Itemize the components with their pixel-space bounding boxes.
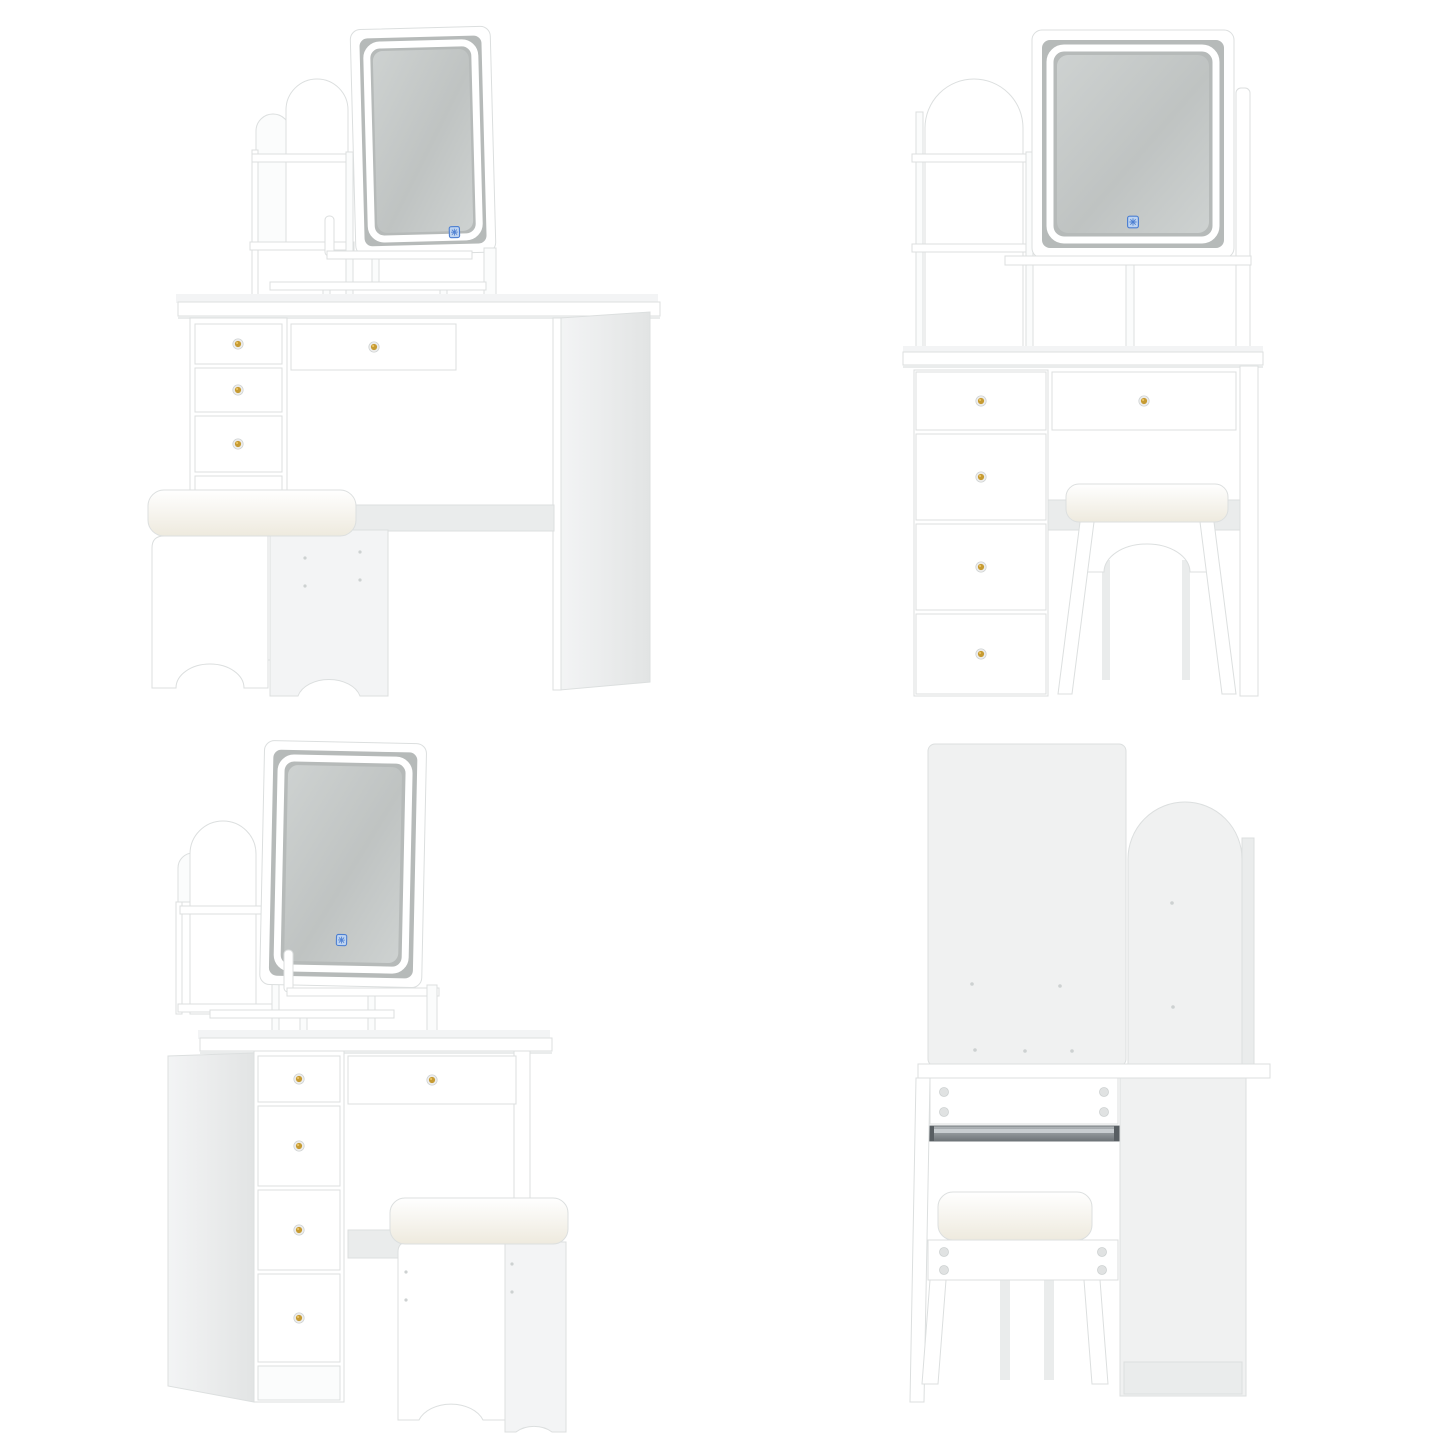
drawer-knob[interactable] [294,1225,304,1235]
cam-lock-fitting [1100,1108,1109,1117]
arched-back-panel [1128,802,1242,1066]
cam-lock [1070,1049,1074,1053]
cam-lock [1058,984,1062,988]
hutch-shelf [912,244,1034,252]
drawer[interactable] [195,324,282,364]
drawer[interactable] [916,372,1046,430]
cam-lock [970,982,974,986]
cam-lock [973,1048,977,1052]
desktop [903,352,1263,365]
stool-leg [1084,1280,1108,1384]
screw [303,584,306,587]
screw [358,578,361,581]
stool-rear-leg [1044,1280,1054,1380]
shelf-arch-sidewall [284,950,293,992]
cubby-divider [1126,265,1134,352]
led-mirror [260,740,427,987]
stool-leg [1200,522,1236,694]
stool-front-panel [152,536,268,688]
screw [303,556,306,559]
shelf-divider [372,259,379,285]
arched-shelf-panel [286,79,348,248]
stool-rear-leg [1182,560,1190,680]
mirror-glass [284,765,402,963]
drawer-slide-rail [926,1126,1122,1141]
wide-drawer[interactable] [291,324,456,370]
side-back-panel [1242,838,1254,1066]
drawer[interactable] [195,368,282,412]
stool-rear-leg [1000,1280,1010,1380]
right-panel-front-edge [553,318,561,690]
stool-cushion [148,490,356,536]
drawer-knob[interactable] [233,339,243,349]
cam-lock-fitting [940,1266,949,1275]
stool-rear [922,1192,1118,1384]
drawer[interactable] [258,1274,340,1362]
stool-rear-leg [1102,560,1110,680]
left-side-panel [168,1053,254,1402]
stool-front-panel [398,1242,505,1420]
drawer-knob[interactable] [294,1074,304,1084]
view-rear [910,744,1270,1402]
stool-apron [1080,522,1214,572]
screw [358,550,361,553]
rear-top-rail [930,1078,1118,1124]
drawer-knob[interactable] [427,1075,437,1085]
under-mirror-shelf [1005,256,1251,265]
stool-side-panel [270,530,388,696]
stool [148,490,388,696]
hutch-shelf [252,154,352,162]
drawer-knob[interactable] [976,396,986,406]
screw [510,1290,513,1293]
led-mirror [1032,30,1234,258]
drawer-knob[interactable] [976,472,986,482]
screw [510,1262,513,1265]
desktop-strip [918,1064,1270,1078]
cam-lock-fitting [1100,1088,1109,1097]
hutch-right-support [1236,88,1250,352]
drawer-knob[interactable] [976,562,986,572]
stool-side-panel [505,1242,566,1432]
small-arch-panel [256,114,290,248]
cam-lock [1023,1049,1027,1053]
drawer[interactable] [195,416,282,472]
stool-cushion [390,1198,568,1244]
drawer-knob[interactable] [294,1313,304,1323]
screw [404,1270,407,1273]
cam-lock-fitting [1098,1248,1107,1257]
right-side-panel [560,312,650,690]
right-leg-panel [1240,366,1258,696]
drawer-knob[interactable] [976,649,986,659]
wide-drawer[interactable] [1052,372,1236,430]
long-shelf [270,282,486,290]
arched-shelf-panel [190,821,256,1014]
drawer[interactable] [258,1190,340,1270]
drawer-knob[interactable] [233,385,243,395]
view-front-right-perspective [168,740,568,1432]
hutch-left-side [916,112,923,352]
touch-sensor-icon[interactable] [1128,216,1139,228]
hutch-left-side [252,150,258,312]
arched-shelf-panel [925,79,1023,352]
drawer[interactable] [916,434,1046,520]
cabinet-back-panel [1120,1078,1246,1396]
hutch-shelf [250,242,354,250]
cam-lock-fitting [1098,1266,1107,1275]
view-front-straight [903,30,1263,696]
stool-cushion [938,1192,1092,1240]
stool [390,1198,568,1432]
drawer-knob[interactable] [294,1141,304,1151]
touch-sensor-icon[interactable] [336,934,346,945]
touch-sensor-icon[interactable] [449,226,459,237]
under-mirror-shelf [287,988,439,996]
view-front-left-perspective [148,26,660,696]
drawer[interactable] [258,1106,340,1186]
large-back-panel [928,744,1126,1066]
drawer-knob[interactable] [233,439,243,449]
drawer[interactable] [916,614,1046,694]
shelf-arch-sidewall [325,216,334,256]
screw [404,1298,407,1301]
stool-leg [1058,522,1094,694]
desktop [200,1038,552,1051]
stool-rear-rail [928,1240,1118,1280]
product-image-grid [0,0,1445,1445]
led-mirror [350,26,496,256]
mirror-glass [1057,55,1209,233]
stool [1058,484,1236,694]
mirror-glass [373,49,474,233]
cam-lock-fitting [940,1108,949,1117]
cabinet-base [1124,1362,1242,1394]
stool-cushion [1066,484,1228,522]
cam-lock-fitting [940,1248,949,1257]
cam-lock [1170,901,1174,905]
wide-drawer[interactable] [348,1056,516,1104]
drawer-knob[interactable] [369,342,379,352]
under-mirror-shelf [327,251,472,259]
drawer[interactable] [916,524,1046,610]
drawer-knob[interactable] [1139,396,1149,406]
desktop-shadow [903,365,1263,368]
long-shelf [210,1010,394,1018]
hutch-left-side [176,902,182,1014]
drawer[interactable] [258,1056,340,1102]
cabinet-base [258,1366,340,1400]
desktop [178,302,660,316]
hutch-shelf [912,154,1034,162]
cam-lock [1171,1005,1175,1009]
cam-lock-fitting [940,1088,949,1097]
vanity-product-views [0,0,1445,1445]
